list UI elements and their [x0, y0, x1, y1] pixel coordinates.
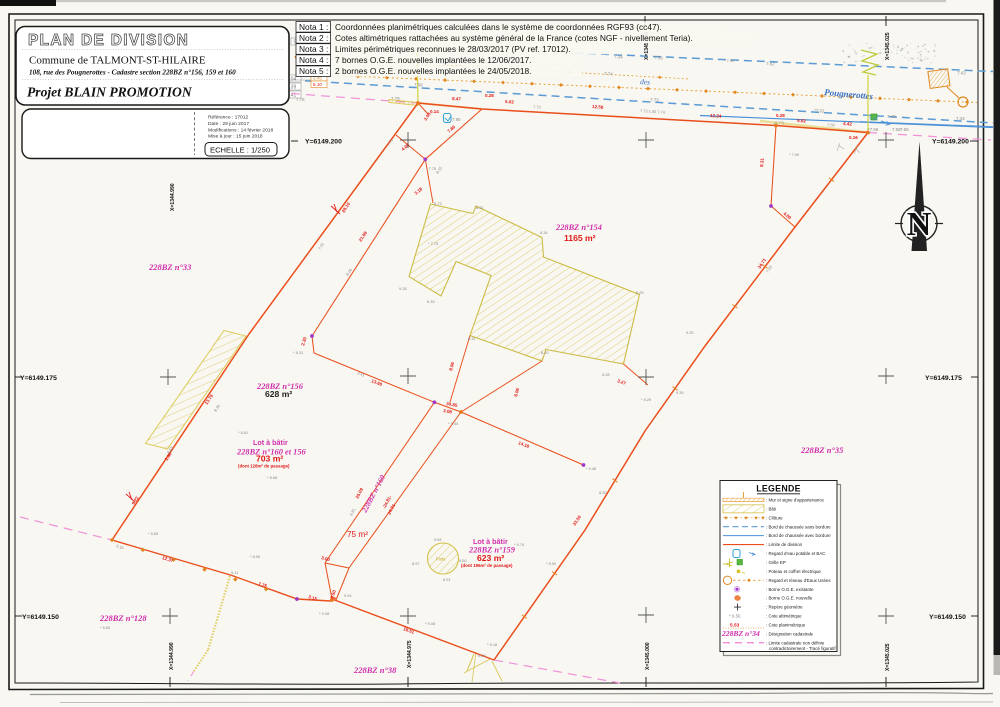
svg-text:: Désignation cadastrale: : Désignation cadastrale: [766, 631, 814, 636]
svg-text:Lot à bâtir: Lot à bâtir: [253, 438, 288, 447]
svg-text:Mise à jour : 15 juin 2018: Mise à jour : 15 juin 2018: [208, 134, 263, 140]
svg-text:* 8.90: * 8.90: [546, 561, 557, 566]
svg-text:Nota 3 :: Nota 3 :: [299, 44, 328, 54]
svg-text:Nota 5 :: Nota 5 :: [299, 66, 328, 76]
svg-text:0.28: 0.28: [776, 113, 785, 118]
svg-text:5.02: 5.02: [505, 99, 515, 105]
svg-text:4.42: 4.42: [843, 121, 853, 127]
svg-text:* 8.96: * 8.96: [250, 554, 260, 559]
svg-text:Projet BLAIN PROMOTION: Projet BLAIN PROMOTION: [27, 85, 193, 100]
svg-text:LEGENDE: LEGENDE: [756, 484, 801, 494]
svg-text:N: N: [907, 206, 932, 243]
svg-text:(dont 128m² de passage): (dont 128m² de passage): [238, 464, 290, 469]
svg-text:8.32: 8.32: [476, 205, 484, 210]
svg-text:Coordonnées planimétriques cal: Coordonnées planimétriques calculées dan…: [335, 22, 662, 32]
svg-text:7.56: 7.56: [900, 127, 909, 132]
svg-text:* 7.59: * 7.59: [724, 58, 734, 63]
svg-text:9.04: 9.04: [344, 593, 352, 598]
svg-text:* 8.65: * 8.65: [148, 531, 158, 536]
svg-text:*7.59: *7.59: [868, 127, 879, 132]
svg-text:9.39: 9.39: [676, 390, 684, 395]
svg-text:228BZ n°35: 228BZ n°35: [800, 445, 844, 455]
svg-text:7.43: 7.43: [957, 70, 966, 76]
svg-text:Limites périmétriques reconnue: Limites périmétriques reconnues le 28/03…: [335, 44, 571, 54]
svg-text:: Bord de chaussée avec bordur: : Bord de chaussée avec bordure: [766, 533, 831, 538]
svg-text:PLAN DE DIVISION: PLAN DE DIVISION: [28, 32, 189, 49]
svg-text:703 m²: 703 m²: [256, 454, 283, 464]
svg-text:8.31: 8.31: [759, 157, 765, 167]
svg-text:: Clôture: : Clôture: [766, 515, 783, 520]
svg-text:7.76: 7.76: [296, 97, 305, 102]
svg-text:: Limite de division: : Limite de division: [766, 542, 803, 547]
svg-text:* 6.65: * 6.65: [100, 625, 110, 630]
svg-text:Nota 2 :: Nota 2 :: [299, 33, 328, 43]
svg-text:8.34: 8.34: [540, 230, 548, 235]
svg-text:: Borne O.G.E. nouvelle: : Borne O.G.E. nouvelle: [766, 596, 813, 601]
svg-text:: Mur et signe d'appartenance: : Mur et signe d'appartenance: [766, 498, 825, 503]
svg-text:7.08: 7.08: [414, 82, 423, 88]
svg-text:Y=6149.175: Y=6149.175: [925, 375, 962, 382]
svg-text:ECHELLE : 1/250: ECHELLE : 1/250: [210, 146, 270, 155]
svg-text:Y=6149.200: Y=6149.200: [305, 139, 342, 146]
svg-text:* 7.75: * 7.75: [426, 166, 436, 171]
svg-text:9.28: 9.28: [399, 286, 407, 291]
svg-text:7.34: 7.34: [614, 54, 623, 60]
svg-text:: Cote altimétrique: : Cote altimétrique: [766, 614, 802, 619]
svg-text:* 9.56: * 9.56: [729, 614, 741, 619]
svg-text:7 bornes O.G.E. nouvelles impl: 7 bornes O.G.E. nouvelles implantées le …: [335, 55, 531, 65]
svg-text:* 9.08: * 9.08: [319, 611, 329, 616]
svg-text:8.20: 8.20: [541, 350, 549, 355]
svg-text:7.73: 7.73: [533, 104, 541, 110]
svg-text:5.53: 5.53: [730, 623, 740, 629]
svg-text:(dont 196m² de passage): (dont 196m² de passage): [461, 563, 513, 568]
svg-text:X=1344.990: X=1344.990: [169, 642, 175, 670]
svg-text:6.33: 6.33: [427, 299, 435, 304]
svg-text:2 bornes O.G.E. nouvelles impl: 2 bornes O.G.E. nouvelles implantées le …: [335, 66, 531, 76]
svg-text:8.25: 8.25: [636, 290, 644, 295]
svg-text:8.91: 8.91: [443, 577, 451, 582]
svg-text:5.10: 5.10: [313, 82, 322, 87]
svg-text:Nota 1 :: Nota 1 :: [299, 22, 328, 32]
svg-text:7.59: 7.59: [654, 55, 663, 61]
svg-text:Y=6149.175: Y=6149.175: [20, 375, 57, 382]
svg-text:* 9.08: * 9.08: [425, 621, 435, 626]
svg-text:1165 m²: 1165 m²: [564, 233, 596, 243]
svg-text:Nota 4 :: Nota 4 :: [299, 55, 328, 65]
svg-text:X=1345.025: X=1345.025: [885, 32, 891, 60]
svg-text:7.90: 7.90: [452, 117, 461, 122]
svg-text:* 8.61: * 8.61: [238, 430, 248, 435]
svg-text:: Repère géomètre: : Repère géomètre: [766, 605, 803, 610]
svg-text:* 9.48: * 9.48: [586, 466, 596, 471]
svg-text:Y=6149.200: Y=6149.200: [932, 139, 969, 146]
svg-text:8.47: 8.47: [452, 96, 462, 102]
svg-text:623 m²: 623 m²: [477, 553, 504, 563]
svg-text:Puits: Puits: [436, 557, 445, 562]
svg-text:7.73: 7.73: [650, 97, 659, 103]
svg-text:Y=6149.150: Y=6149.150: [929, 614, 966, 621]
svg-text:: Bâti: : Bâti: [766, 506, 776, 511]
svg-text:Référence : 17012: Référence : 17012: [208, 115, 249, 121]
svg-text:9.84: 9.84: [434, 537, 442, 542]
svg-text:: Bord de chaussée sans bordur: : Bord de chaussée sans bordure: [766, 524, 831, 529]
svg-text:* 9.74: * 9.74: [514, 542, 525, 547]
svg-text:7.48: 7.48: [869, 116, 878, 121]
svg-text:228BZ n°154: 228BZ n°154: [555, 223, 602, 232]
svg-text:* 8.31: * 8.31: [293, 350, 303, 355]
svg-text:5.02: 5.02: [797, 118, 807, 124]
svg-text:* 7.90: * 7.90: [789, 152, 800, 157]
svg-text:Cotes altimétriques rattachées: Cotes altimétriques rattachées au systèm…: [335, 33, 693, 43]
svg-text:8.31: 8.31: [468, 336, 476, 341]
svg-text:des: des: [640, 77, 651, 87]
svg-text:* 7.75: * 7.75: [428, 241, 438, 246]
svg-text:* 8.68: * 8.68: [267, 475, 277, 480]
svg-text:9.26: 9.26: [478, 653, 486, 658]
svg-text:*7.62: *7.62: [814, 108, 825, 114]
svg-text:8.28: 8.28: [602, 372, 610, 377]
svg-text:(2.77): (2.77): [774, 120, 785, 125]
svg-text:228BZ n°33: 228BZ n°33: [148, 262, 192, 272]
svg-text:9.25: 9.25: [686, 330, 694, 335]
svg-text:Y=6149.150: Y=6149.150: [22, 614, 59, 621]
svg-text:: Limite cadastrale non défini: : Limite cadastrale non définie: [766, 640, 825, 645]
svg-text:228BZ n°128: 228BZ n°128: [99, 613, 147, 623]
svg-text:228BZ n°34: 228BZ n°34: [721, 629, 760, 638]
svg-text:* 9.18: * 9.18: [487, 642, 497, 647]
svg-text:12.58: 12.58: [592, 104, 604, 110]
svg-text:108, rue des Pougnerottes - Ca: 108, rue des Pougnerottes - Cadastre sec…: [29, 69, 236, 77]
svg-text:7.43: 7.43: [956, 116, 965, 121]
svg-text:* 8.29: * 8.29: [641, 397, 651, 402]
svg-text:: Borne O.G.E. existante: : Borne O.G.E. existante: [766, 587, 814, 592]
svg-text:X=1344.975: X=1344.975: [407, 640, 413, 668]
svg-text:contradictoirement - Tracé fig: contradictoirement - Tracé figuratif: [769, 646, 836, 651]
svg-text:Date : 29 juin 2017: Date : 29 juin 2017: [208, 121, 249, 127]
svg-text:* 9.44: * 9.44: [448, 421, 459, 426]
svg-text:0.16: 0.16: [849, 135, 858, 140]
svg-text:7.40: 7.40: [887, 114, 896, 119]
svg-text:228BZ n°38: 228BZ n°38: [353, 665, 397, 675]
svg-text:: Poteau et coffret électrique: : Poteau et coffret électrique: [766, 569, 821, 574]
svg-text:628 m²: 628 m²: [265, 389, 292, 399]
svg-text:Commune de TALMONT-ST-HILAIRE: Commune de TALMONT-ST-HILAIRE: [29, 55, 206, 67]
svg-text:7.58: 7.58: [827, 122, 835, 128]
svg-text:: Regard d'eau potable et BAC: : Regard d'eau potable et BAC: [766, 551, 825, 556]
svg-text:8.97: 8.97: [412, 561, 420, 566]
svg-text:7.62: 7.62: [766, 61, 775, 67]
svg-text:X=1345.000: X=1345.000: [645, 642, 651, 670]
svg-text:7.74: 7.74: [604, 71, 613, 77]
svg-text:: Cote planimétrique: : Cote planimétrique: [766, 623, 806, 628]
svg-text:8.73: 8.73: [434, 201, 442, 206]
svg-text:X=1344.990: X=1344.990: [170, 183, 176, 211]
svg-text:0.28: 0.28: [485, 93, 494, 98]
svg-text:: Grille EP: : Grille EP: [766, 560, 786, 565]
svg-text:8.50: 8.50: [599, 490, 607, 495]
svg-text:X=1345.025: X=1345.025: [885, 643, 891, 671]
svg-text:: Regard et réseau d'Eaux Usée: : Regard et réseau d'Eaux Usées: [766, 578, 831, 583]
svg-text:0.14: 0.14: [430, 109, 439, 114]
svg-text:Modifications : 14 février 201: Modifications : 14 février 2018: [208, 127, 274, 133]
svg-text:9.11: 9.11: [231, 570, 238, 575]
svg-text:7.58: 7.58: [892, 127, 901, 132]
svg-text:12.24: 12.24: [710, 113, 722, 119]
svg-text:75 m²: 75 m²: [347, 530, 368, 539]
